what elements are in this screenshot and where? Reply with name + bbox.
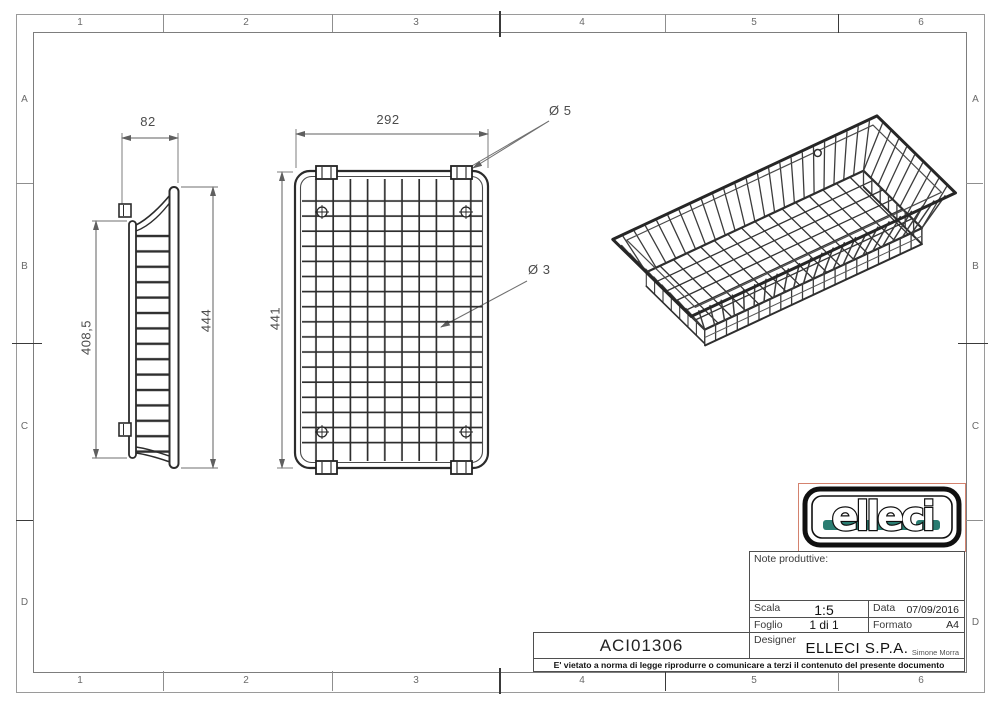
disclaimer-text: E' vietato a norma di legge riprodurre o… (554, 660, 945, 670)
sheet-number-value: 1 di 1 (780, 618, 868, 632)
callout-rim-wire-diameter: Ø 5 (549, 103, 589, 118)
designer-name: Simone Morra (912, 648, 959, 657)
disclaimer-bar: E' vietato a norma di legge riprodurre o… (533, 658, 965, 672)
dim-side-width: 82 (124, 114, 172, 129)
basket-side-profile (119, 187, 179, 468)
date-value: 07/09/2016 (906, 604, 959, 616)
elleci-logo: elleci (799, 484, 965, 551)
callout-mesh-wire-diameter: Ø 3 (528, 262, 568, 277)
dim-plan-width: 292 (364, 112, 412, 127)
scale-value: 1:5 (780, 602, 868, 618)
format-cell: Formato A4 (868, 617, 965, 633)
plan-view-drawing (277, 121, 549, 474)
basket-plan (295, 166, 488, 474)
date-cell: Data 07/09/2016 (868, 600, 965, 618)
notes-label: Note produttive: (754, 553, 828, 565)
scale-label: Scala (754, 602, 780, 614)
sheet-number-cell: Foglio 1 di 1 (749, 617, 869, 633)
format-value: A4 (946, 619, 959, 631)
notes-box: Note produttive: (749, 551, 965, 601)
dim-side-outer-height: 444 (199, 299, 214, 343)
dim-plan-height: 441 (268, 297, 283, 341)
technical-drawing-sheet: 1 2 3 4 5 6 1 2 3 4 5 6 A B C D A B C D (0, 0, 1000, 706)
logo-text: elleci (831, 494, 932, 540)
sheet-number-label: Foglio (754, 619, 783, 631)
format-label: Formato (873, 619, 912, 631)
logo-frame: elleci (798, 483, 966, 552)
isometric-view-drawing (613, 116, 956, 346)
designer-box: Designer ELLECI S.P.A. Simone Morra (749, 632, 965, 659)
part-code-box: ACI01306 (533, 632, 750, 659)
dim-side-inner-height: 408,5 (79, 316, 94, 360)
part-code: ACI01306 (600, 636, 684, 656)
date-label: Data (873, 602, 895, 614)
scale-cell: Scala 1:5 (749, 600, 869, 618)
